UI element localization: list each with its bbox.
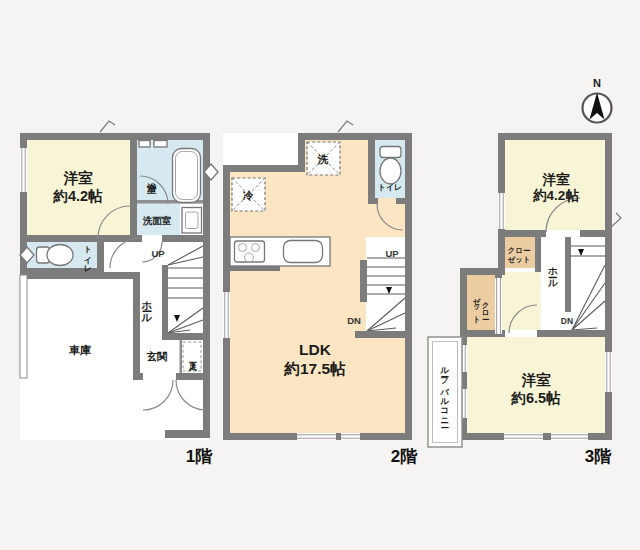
room-label-western-room-65-3f: 洋室 約6.5帖 — [511, 372, 560, 407]
room-label-hall-1f: ホール — [141, 293, 154, 318]
closet-upper-label: クロー ゼット — [507, 246, 530, 264]
room-label-washroom: 洗面室 — [143, 215, 172, 227]
floor-label-1f: 1階 — [186, 447, 212, 468]
sink-icon — [284, 241, 323, 263]
stairs-down-label-2f: DN — [347, 315, 361, 327]
floor-label-2f: 2階 — [391, 447, 417, 468]
roof-balcony-label: ルーフバルコニー — [440, 361, 450, 423]
room-label-toilet-2f: トイレ — [378, 183, 403, 193]
stove-icon — [235, 241, 265, 262]
washer-space-label: 洗 — [318, 153, 329, 166]
toilet-icon-1f — [37, 245, 74, 266]
room-label-western-room-1f: 洋室 約4.2帖 — [53, 170, 102, 205]
room-label-ldk: LDK 約17.5帖 — [284, 341, 345, 379]
room-label-western-room-42-3f: 洋室 約4.2帖 — [533, 172, 579, 205]
room-label-toilet-1f: トイレ — [82, 241, 92, 270]
kitchen-counter — [230, 237, 330, 266]
room-label-entrance: 玄関 — [147, 350, 168, 363]
room-label-garage: 車庫 — [69, 344, 91, 357]
washbasin-icon — [182, 208, 202, 234]
stairs-up-label-2f: UP — [385, 248, 398, 260]
closet-lower-label: クロー ゼット — [472, 292, 490, 319]
room-label-bathroom: 浴室 — [146, 176, 158, 177]
floor-label-3f: 3階 — [585, 447, 611, 468]
room-label-hall-3f: ホール — [547, 260, 559, 283]
floorplan-graphic — [0, 0, 640, 550]
stairs-up-label-1f: UP — [151, 248, 164, 260]
floorplan-canvas: 洋室 約4.2帖 浴室 洗面室 トイレ UP ホール 玄関 下足入 車庫 1階 … — [0, 0, 640, 550]
room-label-shoe-storage: 下足入 — [187, 355, 197, 357]
toilet-icon-2f — [380, 147, 401, 185]
compass-north-label: N — [593, 77, 601, 90]
stairs-down-label-3f: DN — [561, 316, 573, 326]
fridge-space-label: 冷 — [243, 189, 254, 202]
compass-north-icon — [583, 93, 612, 123]
